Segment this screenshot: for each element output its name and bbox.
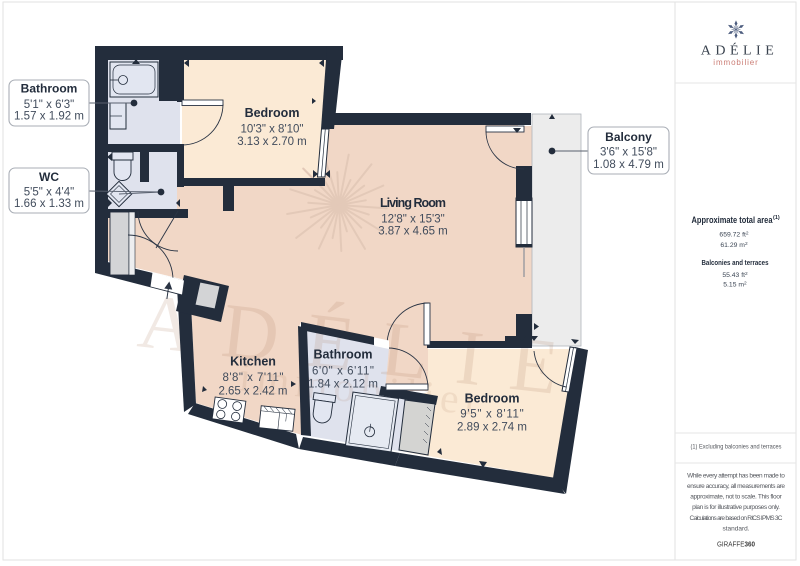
- svg-text:ADÉLIE: ADÉLIE: [701, 42, 779, 59]
- svg-text:Approximate total area: Approximate total area: [692, 215, 774, 225]
- svg-text:1.57 x 1.92 m: 1.57 x 1.92 m: [14, 111, 84, 123]
- svg-text:immobilier: immobilier: [713, 58, 758, 67]
- svg-text:1.84 x 2.12 m: 1.84 x 2.12 m: [308, 379, 378, 391]
- svg-text:While every attempt has been m: While every attempt has been made to: [687, 473, 785, 480]
- svg-text:2.89 x 2.74 m: 2.89 x 2.74 m: [457, 422, 527, 434]
- svg-text:1.66 x 1.33 m: 1.66 x 1.33 m: [14, 198, 84, 210]
- svg-text:5'1" x 6'3": 5'1" x 6'3": [24, 99, 75, 111]
- svg-text:Living Room: Living Room: [380, 196, 446, 210]
- svg-text:Bathroom: Bathroom: [313, 348, 372, 362]
- svg-text:Bathroom: Bathroom: [21, 82, 78, 96]
- svg-text:5.15 m2: 5.15 m2: [723, 281, 747, 289]
- svg-text:Bedroom: Bedroom: [465, 392, 520, 406]
- svg-text:2.65 x 2.42 m: 2.65 x 2.42 m: [219, 386, 288, 398]
- svg-text:Balcony: Balcony: [605, 130, 652, 144]
- svg-text:1.08 x 4.79 m: 1.08 x 4.79 m: [593, 159, 664, 171]
- svg-text:3.87 x 4.65 m: 3.87 x 4.65 m: [378, 226, 448, 238]
- svg-text:WC: WC: [39, 170, 59, 184]
- svg-text:Balconies and terraces: Balconies and terraces: [702, 260, 769, 267]
- svg-text:3'6" x 15'8": 3'6" x 15'8": [600, 147, 657, 159]
- svg-text:plan is for illustrative purpo: plan is for illustrative purposes only.: [692, 504, 780, 511]
- svg-text:(1): (1): [773, 215, 780, 221]
- svg-text:(1) Excluding balconies and te: (1) Excluding balconies and terraces: [691, 444, 783, 451]
- svg-text:55.43 ft2: 55.43 ft2: [722, 271, 748, 279]
- svg-text:3.13 x 2.70 m: 3.13 x 2.70 m: [237, 136, 307, 148]
- svg-text:10'3" x 8'10": 10'3" x 8'10": [241, 124, 304, 136]
- svg-text:standard.: standard.: [722, 526, 749, 533]
- svg-text:9'5" x 8'11": 9'5" x 8'11": [460, 409, 524, 421]
- svg-text:12'8" x 15'3": 12'8" x 15'3": [381, 214, 445, 226]
- svg-text:Calculations are based on RICS: Calculations are based on RICS IPMS 3C: [690, 515, 783, 522]
- svg-text:ensure accuracy, all measureme: ensure accuracy, all measurements are: [687, 483, 785, 490]
- svg-text:approximate, not to scale. Thi: approximate, not to scale. This floor: [690, 494, 782, 501]
- svg-text:GIRAFFE360: GIRAFFE360: [717, 540, 755, 549]
- svg-text:Bedroom: Bedroom: [245, 106, 300, 120]
- svg-text:8'8" x 7'11": 8'8" x 7'11": [223, 372, 284, 384]
- svg-text:61.29 m2: 61.29 m2: [720, 241, 748, 249]
- svg-text:Kitchen: Kitchen: [230, 355, 276, 369]
- svg-text:659.72 ft2: 659.72 ft2: [719, 230, 748, 238]
- svg-text:5'5" x 4'4": 5'5" x 4'4": [24, 187, 75, 199]
- svg-text:6'0" x 6'11": 6'0" x 6'11": [312, 366, 374, 378]
